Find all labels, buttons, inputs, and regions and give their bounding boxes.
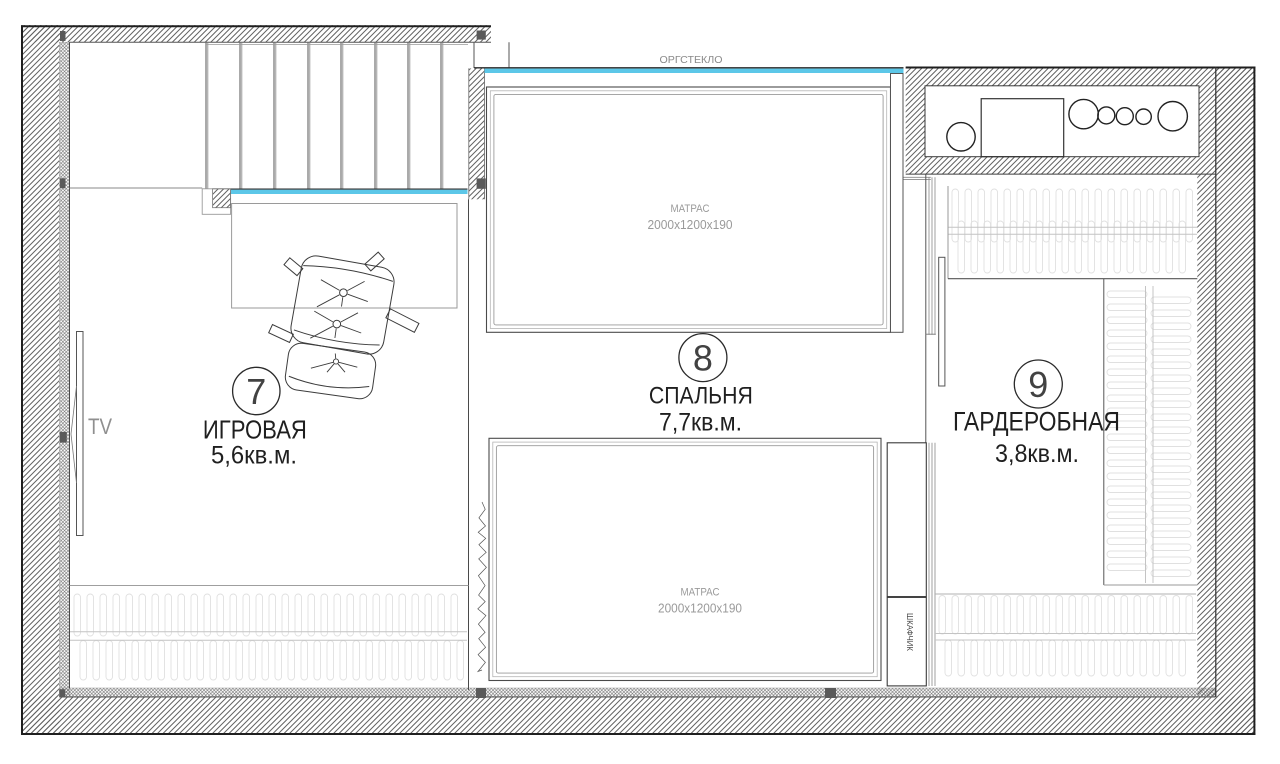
svg-text:ОРГСТЕКЛО: ОРГСТЕКЛО [660, 54, 723, 66]
svg-text:3,8кв.м.: 3,8кв.м. [995, 440, 1079, 468]
svg-text:7: 7 [246, 371, 266, 412]
svg-text:ШКАФЧИК: ШКАФЧИК [905, 613, 914, 651]
svg-text:2000х1200х190: 2000х1200х190 [648, 217, 733, 232]
svg-text:7,7кв.м.: 7,7кв.м. [659, 409, 742, 437]
svg-text:ИГРОВАЯ: ИГРОВАЯ [203, 414, 307, 444]
svg-text:8: 8 [693, 338, 713, 379]
svg-text:2000х1200х190: 2000х1200х190 [658, 601, 742, 616]
svg-text:TV: TV [88, 414, 112, 439]
svg-text:МАТРАС: МАТРАС [681, 587, 720, 599]
svg-text:МАТРАС: МАТРАС [671, 203, 710, 215]
svg-text:ГАРДЕРОБНАЯ: ГАРДЕРОБНАЯ [953, 407, 1120, 437]
svg-text:СПАЛЬНЯ: СПАЛЬНЯ [649, 383, 753, 410]
svg-text:5,6кв.м.: 5,6кв.м. [211, 442, 297, 470]
svg-text:9: 9 [1028, 364, 1048, 405]
